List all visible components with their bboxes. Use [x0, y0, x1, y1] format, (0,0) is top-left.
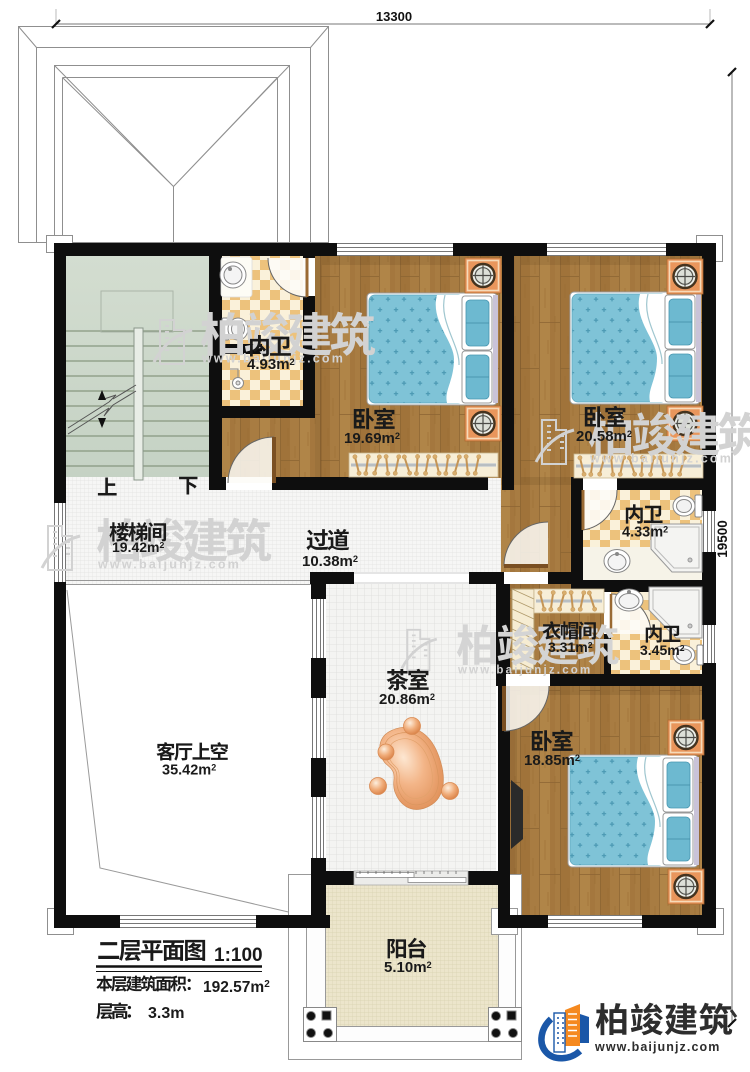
svg-text:1:100: 1:100: [214, 945, 263, 966]
svg-text:20.86m2: 20.86m2: [379, 691, 435, 708]
svg-text:3.45m2: 3.45m2: [640, 642, 685, 658]
svg-text:35.42m2: 35.42m2: [162, 763, 216, 779]
svg-text:3.3m: 3.3m: [148, 1005, 184, 1022]
svg-text:19.42m2: 19.42m2: [112, 539, 164, 555]
svg-text:5.10m2: 5.10m2: [384, 959, 432, 976]
svg-text:4.93m2: 4.93m2: [247, 356, 295, 373]
svg-text:18.85m2: 18.85m2: [524, 752, 580, 769]
svg-text:www.baijunjz.com: www.baijunjz.com: [589, 451, 733, 465]
svg-text:13300: 13300: [376, 9, 412, 24]
svg-text:www.baijunjz.com: www.baijunjz.com: [97, 557, 241, 571]
svg-text:www.baijunjz.com: www.baijunjz.com: [457, 664, 592, 676]
svg-text:19.69m2: 19.69m2: [344, 430, 400, 447]
svg-text:www.baijunjz.com: www.baijunjz.com: [594, 1040, 720, 1054]
svg-text:192.57m2: 192.57m2: [203, 979, 270, 996]
svg-text:3.31m2: 3.31m2: [548, 639, 593, 655]
svg-text:10.38m2: 10.38m2: [302, 553, 358, 570]
svg-text:19500: 19500: [715, 520, 730, 558]
svg-text:4.33m2: 4.33m2: [622, 525, 668, 541]
svg-text:20.58m2: 20.58m2: [576, 428, 632, 445]
